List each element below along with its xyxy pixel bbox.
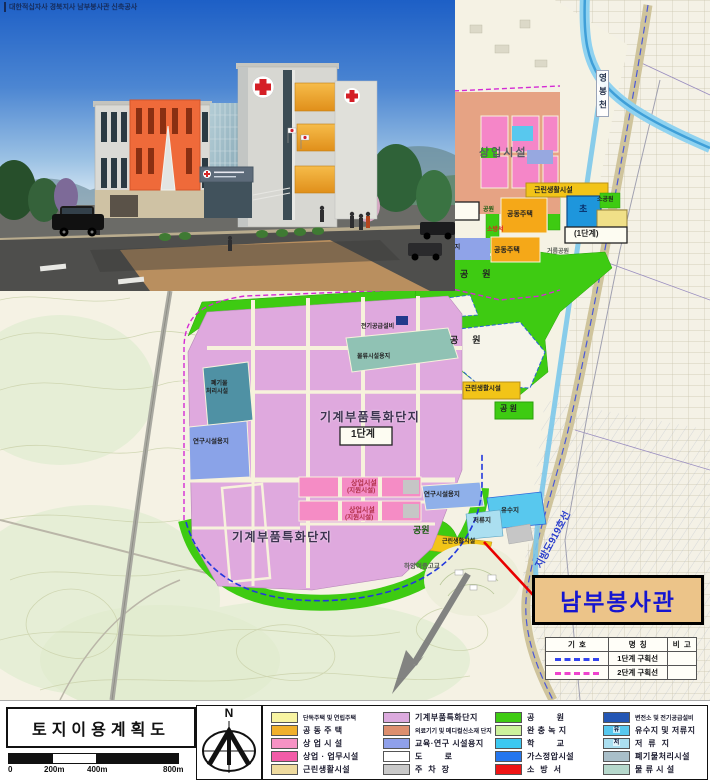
legend-label: 학 교 (527, 738, 565, 749)
phase-table-header: 비 고 (667, 638, 696, 652)
legend-label: 상 업 시 설 (303, 738, 343, 749)
scale-labels: 0 200m 400m 800m (8, 765, 188, 777)
legend-item: 가스정압시설 (495, 750, 574, 762)
southeast-hill (424, 544, 520, 616)
scale-bar (8, 753, 179, 764)
legend-item: 의료기기 및 메디컬신소재 단지 (383, 724, 492, 736)
scale-label: 0 (8, 765, 12, 774)
legend-label: 의료기기 및 메디컬신소재 단지 (415, 726, 492, 735)
legend-label: 주 차 장 (415, 764, 449, 775)
legend-label: 근린생활시설 (303, 764, 350, 775)
legend-item: 주 차 장 (383, 763, 492, 775)
legend-swatch (495, 725, 522, 736)
land-use-plan-page: 상업시설 및 대 단지 근린생활시설 1단계 공원 공동주택 초 소공원 (1단… (0, 0, 710, 781)
legend-label: 완 충 녹 지 (527, 725, 567, 736)
phase1-name: 1단계 구획선 (608, 652, 667, 666)
legend-box: 단독주택 및 연립주택 공 동 주 택 상 업 시 설 상업 · 업무시설 근린… (262, 705, 708, 780)
legend-swatch: 유 (603, 725, 630, 736)
legend-item: 폐기물처리시설 (603, 750, 695, 762)
legend-swatch (603, 764, 630, 775)
legend-label: 가스정압시설 (527, 751, 574, 762)
legend-label: 기계부품특화단지 (415, 712, 478, 723)
phase-table-row: 2단계 구획선 (546, 666, 697, 680)
legend-swatch (271, 725, 298, 736)
legend-swatch (383, 712, 410, 723)
legend-swatch (383, 738, 410, 749)
legend-label: 공 원 (527, 712, 565, 723)
legend-item: 물 류 시 설 (603, 763, 695, 775)
legend-column: 공 원 완 충 녹 지 학 교 가스정압시설 소 방 서 (495, 711, 574, 775)
phase-legend-table: 기 호 명 칭 비 고 1단계 구획선 2단계 구획선 (545, 637, 697, 680)
legend-label: 유수지 및 저류지 (635, 725, 695, 736)
legend-item: 공 동 주 택 (271, 724, 359, 736)
legend-swatch: 저 (603, 738, 630, 749)
legend-item: 단독주택 및 연립주택 (271, 711, 359, 723)
map-title-box: 토지이용계획도 (6, 707, 196, 748)
legend-label: 변전소 및 전기공급설비 (635, 713, 694, 722)
north-arrow-icon (200, 719, 258, 775)
phase1-line-symbol (555, 658, 599, 661)
phase2-line-symbol (555, 672, 599, 675)
map-title: 토지이용계획도 (32, 716, 170, 740)
legend-item: 근린생활시설 (271, 763, 359, 775)
scale-label: 800m (163, 765, 183, 774)
legend-item: 기계부품특화단지 (383, 711, 492, 723)
legend-swatch (271, 764, 298, 775)
legend-swatch (271, 751, 298, 762)
legend-swatch (495, 738, 522, 749)
phase2-remark (667, 666, 696, 680)
legend-item: 소 방 서 (495, 763, 574, 775)
legend-item: 완 충 녹 지 (495, 724, 574, 736)
callout-nambu-bongsagwan: 남부봉사관 (532, 575, 704, 625)
legend-item: 공 원 (495, 711, 574, 723)
legend-label: 도 로 (415, 751, 453, 762)
legend-column: 기계부품특화단지 의료기기 및 메디컬신소재 단지 교육·연구 시설용지 도 로 (383, 711, 492, 775)
legend-item: 상 업 시 설 (271, 737, 359, 749)
phase-table-header: 기 호 (546, 638, 609, 652)
legend-item: 변전소 및 전기공급설비 (603, 711, 695, 723)
legend-item: 저 저 류 지 (603, 737, 695, 749)
north-label: N (197, 707, 261, 719)
legend-label: 공 동 주 택 (303, 725, 343, 736)
phase2-name: 2단계 구획선 (608, 666, 667, 680)
legend-column: 변전소 및 전기공급설비 유 유수지 및 저류지 저 저 류 지 폐기물처리시설… (603, 711, 695, 775)
legend-swatch (271, 712, 298, 723)
scale-label: 400m (87, 765, 107, 774)
legend-label: 물 류 시 설 (635, 764, 675, 775)
building-rendering-photo: 대한적십자사 경북지사 남부봉사관 신축공사 (0, 0, 455, 291)
building-rendering (0, 0, 455, 291)
legend-item: 상업 · 업무시설 (271, 750, 359, 762)
phase1-remark (667, 652, 696, 666)
legend-label: 저 류 지 (635, 738, 669, 749)
red-cross-logo-small (344, 88, 360, 104)
legend-swatch (495, 751, 522, 762)
legend-swatch (495, 712, 522, 723)
phase-table-header: 명 칭 (608, 638, 667, 652)
phase-table-row: 1단계 구획선 (546, 652, 697, 666)
north-arrow-box: N (196, 705, 262, 780)
callout-label: 남부봉사관 (560, 583, 676, 617)
legend-item: 유 유수지 및 저류지 (603, 724, 695, 736)
legend-swatch (603, 751, 630, 762)
legend-swatch (495, 764, 522, 775)
legend-label: 교육·연구 시설용지 (415, 738, 484, 749)
legend-label: 소 방 서 (527, 764, 561, 775)
photo-caption: 대한적십자사 경북지사 남부봉사관 신축공사 (4, 2, 137, 12)
legend-item: 교육·연구 시설용지 (383, 737, 492, 749)
legend-label: 단독주택 및 연립주택 (303, 713, 356, 722)
legend-swatch (603, 712, 630, 723)
red-cross-logo (252, 76, 274, 98)
legend-swatch (383, 725, 410, 736)
legend-item: 학 교 (495, 737, 574, 749)
scale-label: 200m (44, 765, 64, 774)
legend-item: 도 로 (383, 750, 492, 762)
legend-column: 단독주택 및 연립주택 공 동 주 택 상 업 시 설 상업 · 업무시설 근린… (271, 711, 359, 775)
legend-swatch (383, 764, 410, 775)
legend-swatch (383, 751, 410, 762)
legend-label: 상업 · 업무시설 (303, 751, 359, 762)
legend-swatch (271, 738, 298, 749)
footer-legend-bar: 토지이용계획도 0 200m 400m 800m N (0, 700, 710, 781)
legend-label: 폐기물처리시설 (635, 751, 690, 762)
